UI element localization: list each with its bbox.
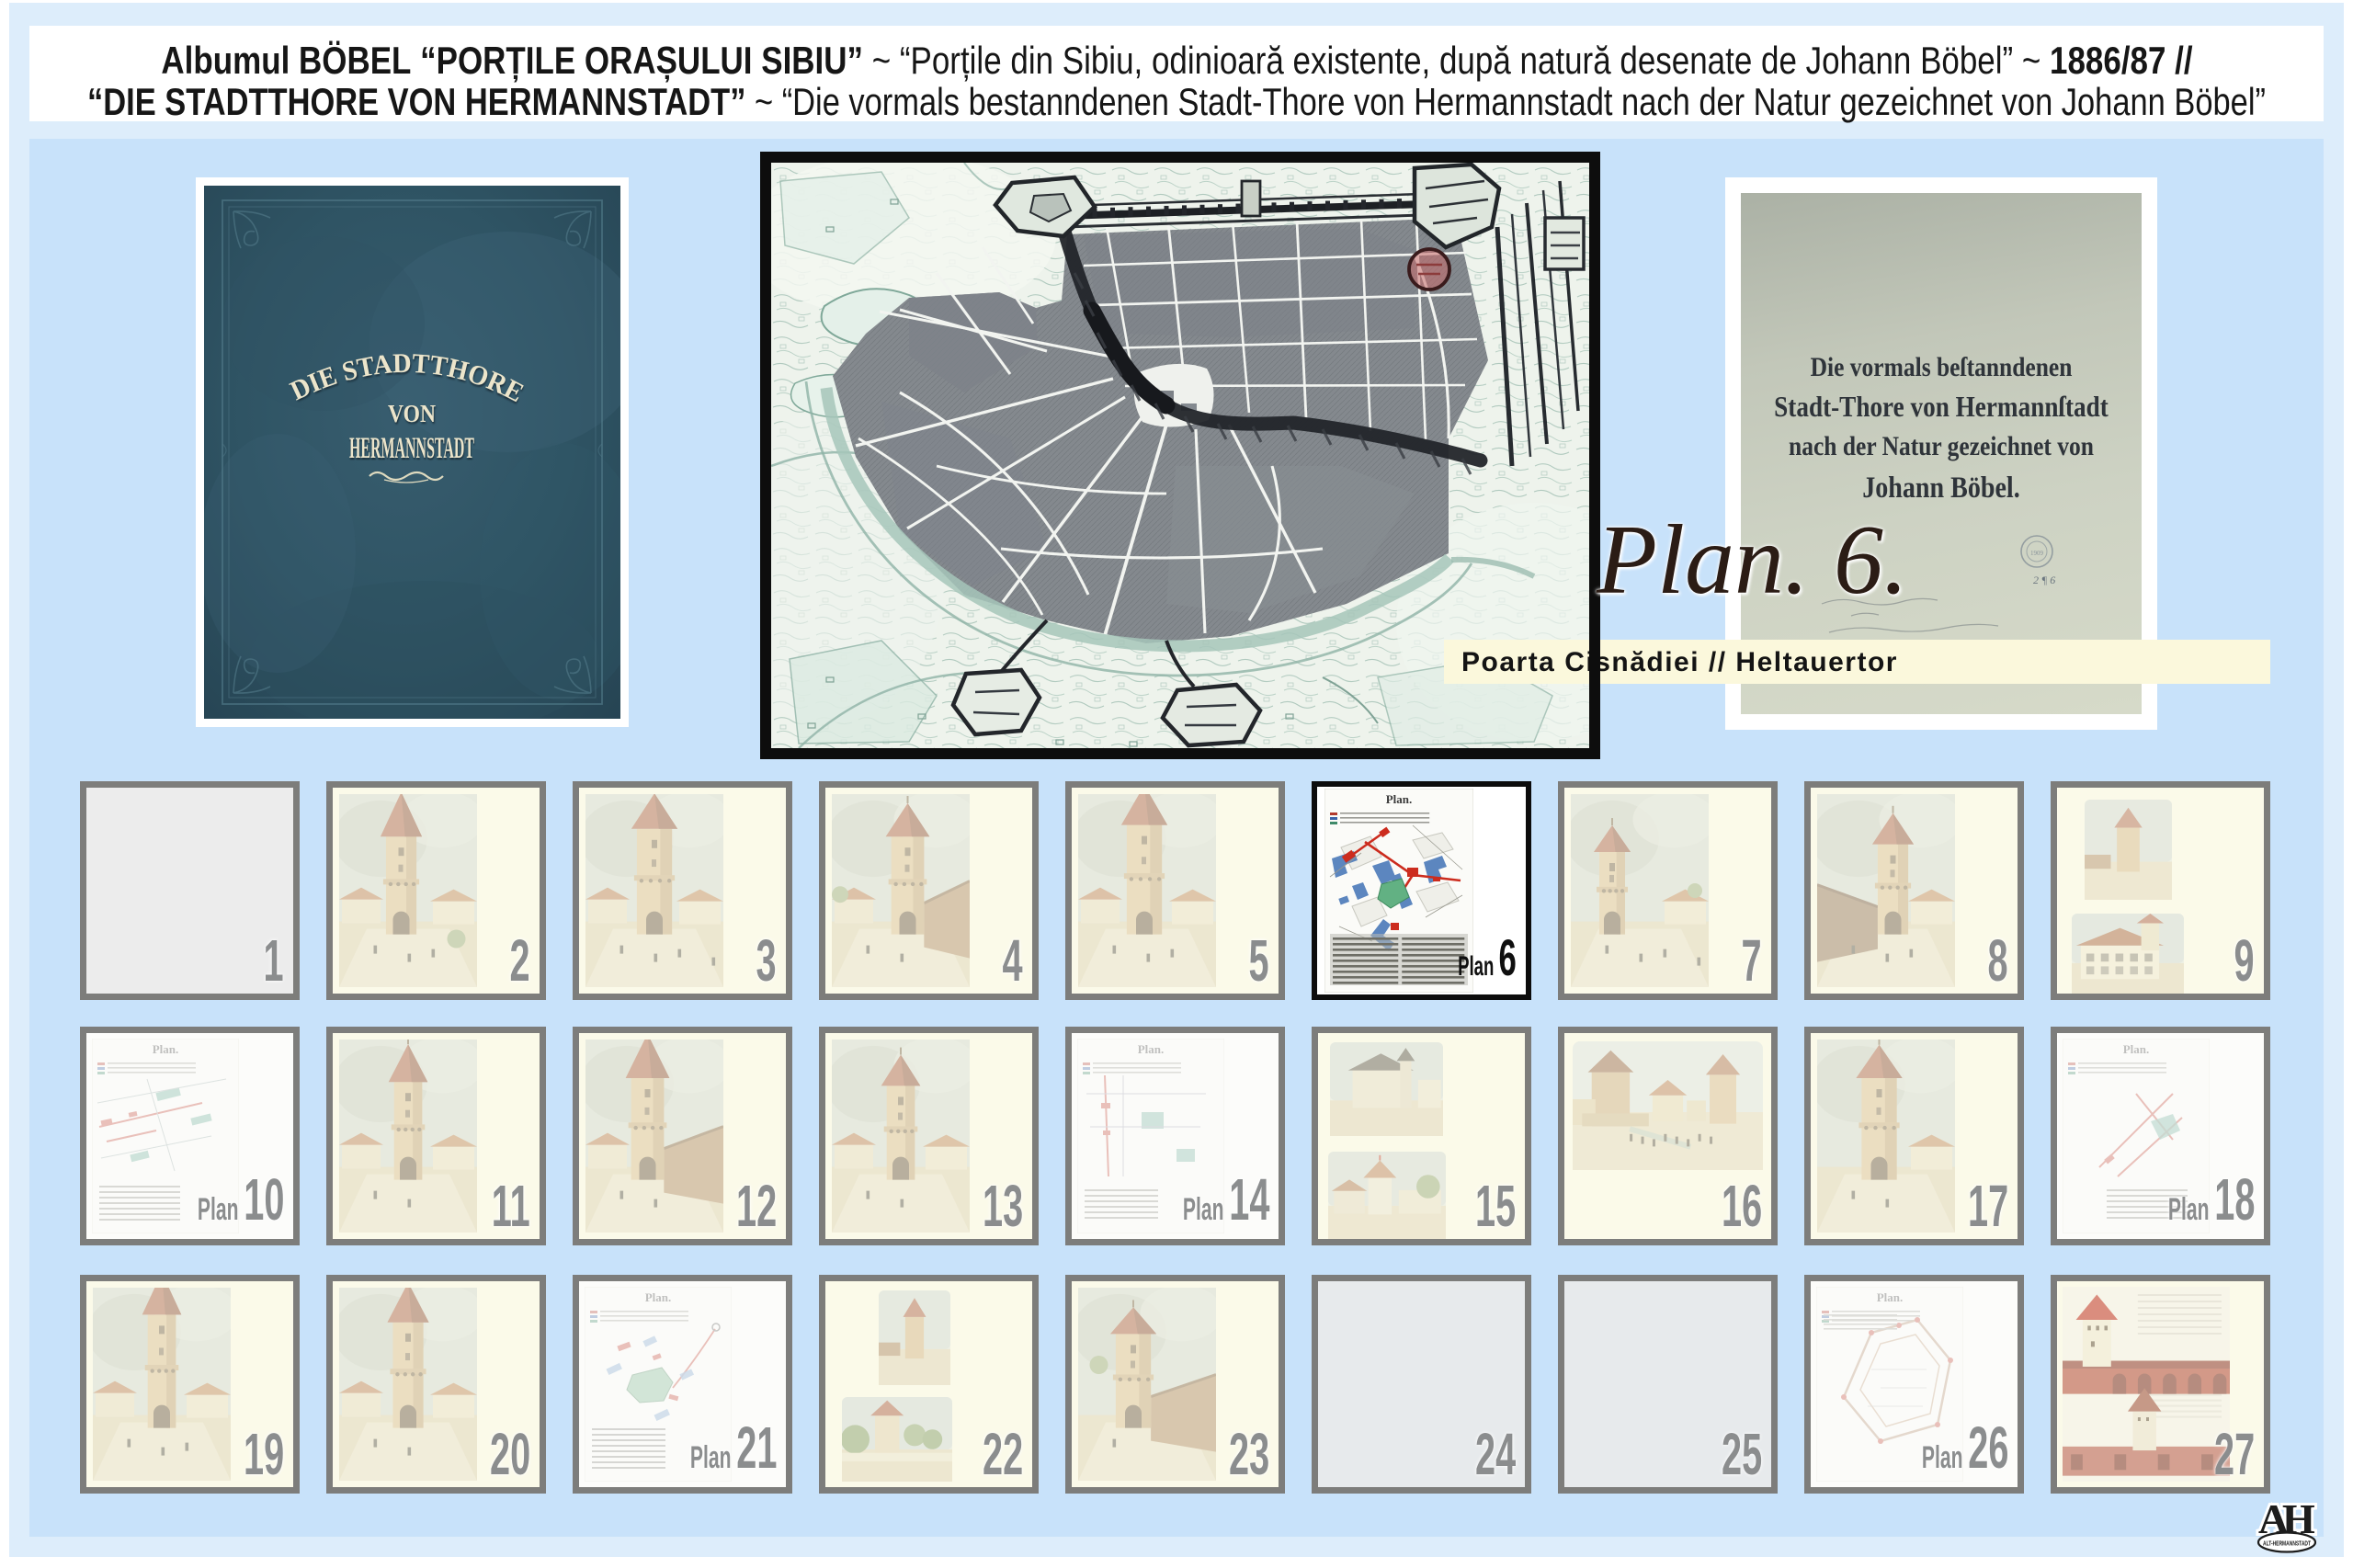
svg-text:1909: 1909: [2030, 550, 2044, 557]
svg-text:Plan.: Plan.: [1386, 792, 1413, 806]
svg-text:ALT-HERMANNSTADT: ALT-HERMANNSTADT: [2263, 1541, 2312, 1548]
svg-text:Plan.: Plan.: [1877, 1290, 1904, 1304]
svg-text:Plan.: Plan.: [1138, 1042, 1165, 1056]
svg-text:2 ¶ 6: 2 ¶ 6: [2033, 574, 2055, 586]
svg-text:Plan.: Plan.: [2123, 1042, 2150, 1056]
svg-text:Plan.: Plan.: [153, 1042, 179, 1056]
svg-text:HERMANNSTADT: HERMANNSTADT: [349, 432, 474, 465]
svg-text:VON: VON: [388, 400, 436, 427]
svg-text:Plan.: Plan.: [645, 1290, 672, 1304]
